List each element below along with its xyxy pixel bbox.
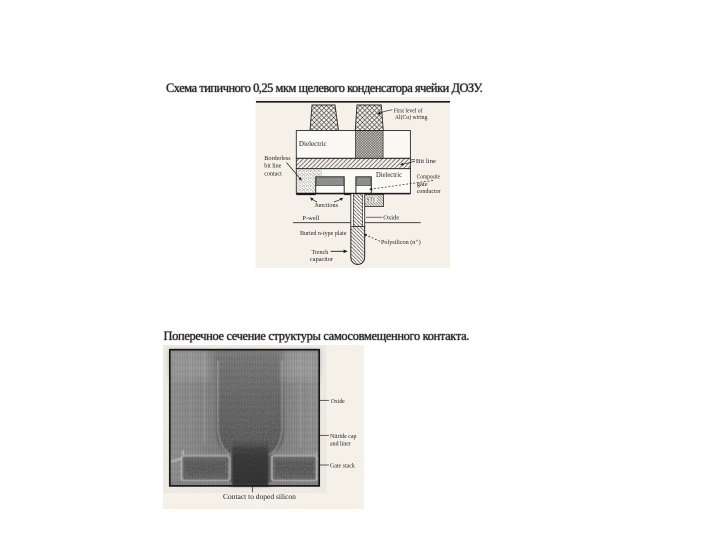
svg-text:Dielectric: Dielectric <box>299 140 327 148</box>
svg-text:conductor: conductor <box>417 188 442 195</box>
svg-text:Gate stack: Gate stack <box>330 463 355 470</box>
svg-text:bit line: bit line <box>264 163 281 170</box>
svg-text:capacitor: capacitor <box>310 256 334 263</box>
svg-text:Borderless: Borderless <box>264 155 291 162</box>
svg-text:Polysilicon (n⁺): Polysilicon (n⁺) <box>381 239 421 246</box>
svg-text:Buried n-type plate: Buried n-type plate <box>300 230 347 237</box>
svg-text:P-well: P-well <box>302 215 319 222</box>
svg-text:Trench: Trench <box>312 249 329 256</box>
svg-text:Oxide: Oxide <box>331 398 345 405</box>
svg-text:contact: contact <box>264 170 282 177</box>
svg-text:Al(Cu) wiring: Al(Cu) wiring <box>395 114 428 121</box>
svg-text:Composite: Composite <box>417 174 440 181</box>
svg-text:Contact to doped silicon: Contact to doped silicon <box>223 494 297 501</box>
svg-text:and liner: and liner <box>330 441 352 448</box>
svg-text:Junctions: Junctions <box>315 202 339 209</box>
svg-text:Dielectric: Dielectric <box>376 171 402 179</box>
svg-text:Nitride cap: Nitride cap <box>330 433 357 440</box>
svg-text:Oxide: Oxide <box>383 214 399 221</box>
svg-text:STI: STI <box>366 197 375 203</box>
svg-text:Bit line: Bit line <box>416 158 436 165</box>
